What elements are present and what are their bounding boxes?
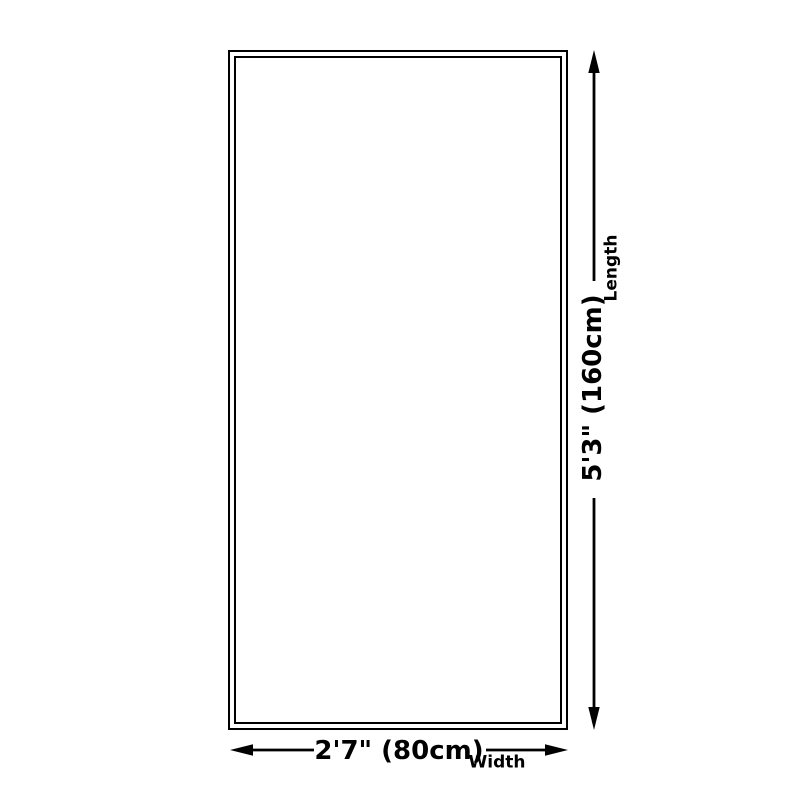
rug-outline-inner	[234, 56, 562, 724]
length-arrow-up-head	[588, 50, 599, 73]
width-arrow-left-head	[230, 744, 253, 755]
width-arrow-right-head	[545, 744, 568, 755]
width-label: Width	[469, 755, 526, 772]
length-arrow-down-head	[588, 707, 599, 730]
dimension-diagram: 5'3" (160cm) Length 2'7" (80cm) Width	[0, 0, 800, 800]
length-value: 5'3" (160cm)	[580, 294, 606, 481]
length-label: Length	[604, 235, 621, 302]
width-value: 2'7" (80cm)	[314, 738, 483, 764]
rug-outline	[228, 50, 568, 730]
